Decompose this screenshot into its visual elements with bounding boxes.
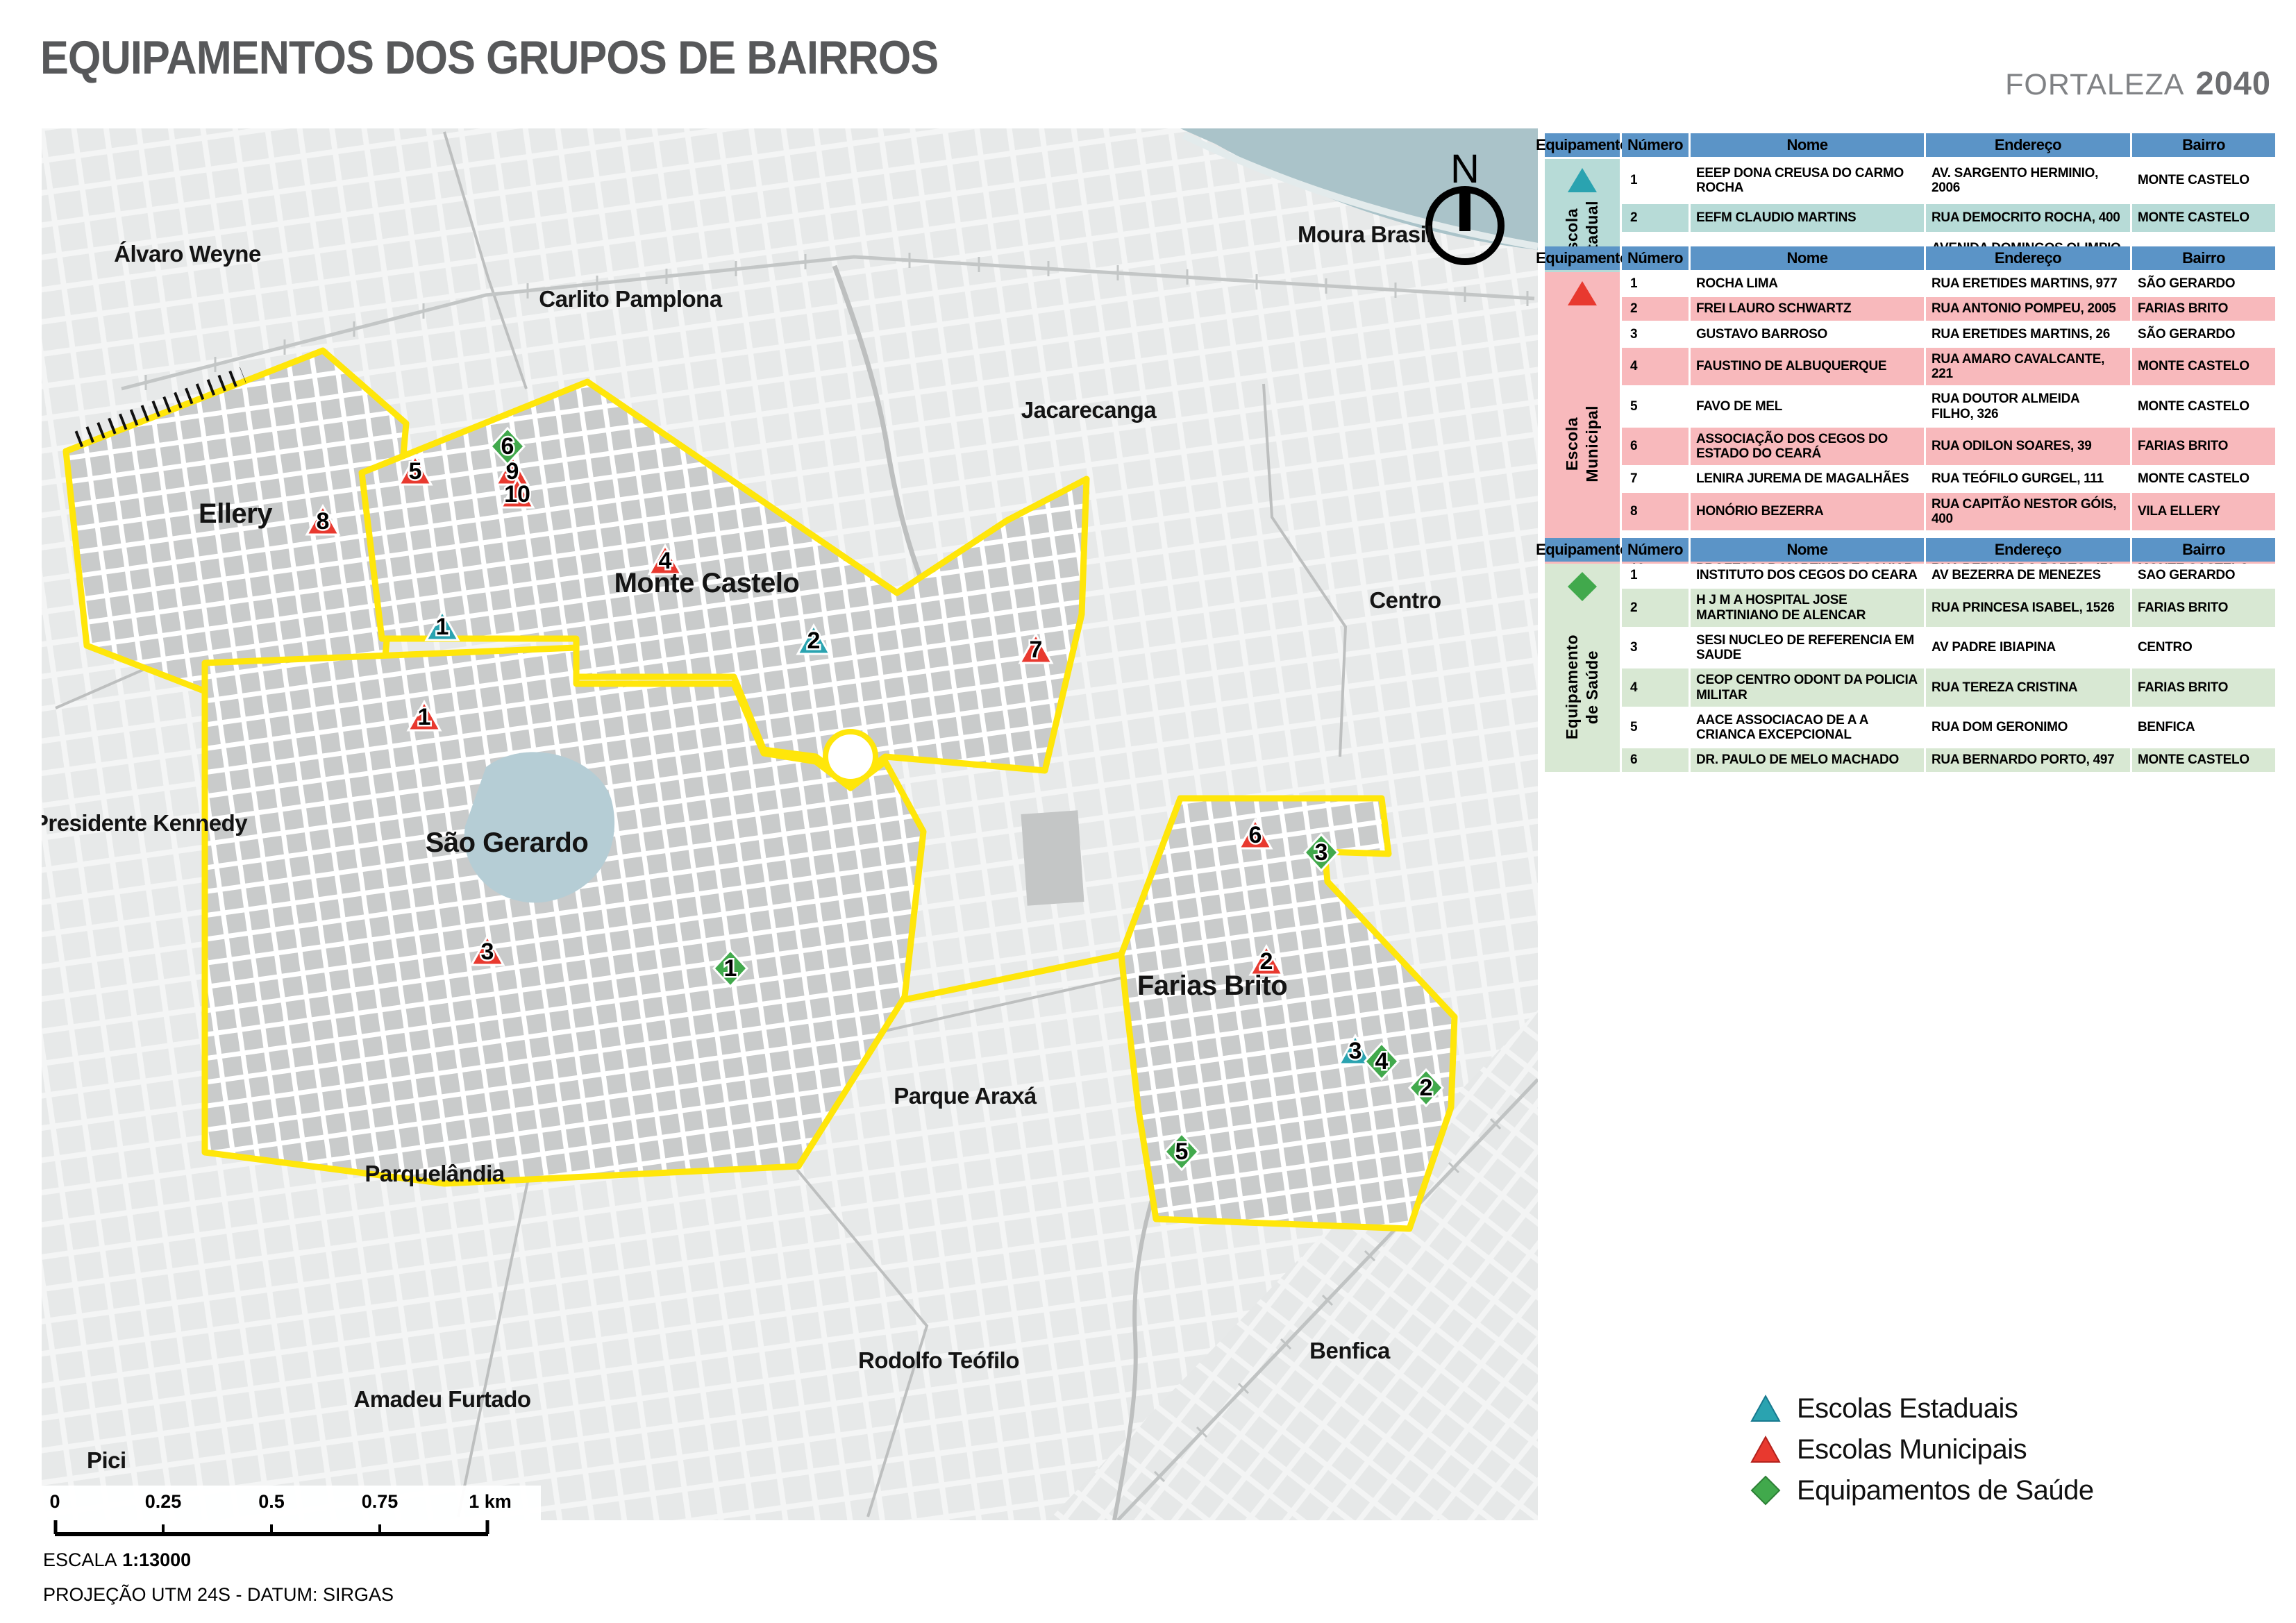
svg-text:10: 10 <box>504 481 530 507</box>
svg-text:7: 7 <box>1030 637 1043 663</box>
neighborhood-label-jacarecanga: Jacarecanga <box>1021 397 1157 423</box>
table-row: 2 <box>1622 297 1689 320</box>
svg-text:6: 6 <box>1249 822 1262 848</box>
table-row: 1 <box>1622 272 1689 295</box>
marker-municipal-10: 10 <box>501 479 533 507</box>
map-legend: Escolas Estaduais Escolas Municipais Equ… <box>1750 1393 2094 1506</box>
table-row: 1 <box>1622 159 1689 202</box>
svg-text:0.5: 0.5 <box>258 1491 285 1512</box>
col-header-nome: Nome <box>1691 133 1924 157</box>
group-label-municipal: Escola Municipal <box>1563 314 1602 574</box>
svg-text:3: 3 <box>1315 839 1328 866</box>
group-cell-municipal: Escola Municipal <box>1545 272 1620 581</box>
neighborhood-label-ellery: Ellery <box>199 498 273 529</box>
svg-text:4: 4 <box>1375 1048 1389 1075</box>
estadual-triangle-icon <box>1566 166 1598 194</box>
scale-text: ESCALA 1:13000 <box>43 1549 191 1571</box>
brand-city: FORTALEZA <box>2005 68 2184 102</box>
neighborhood-label-benfica: Benfica <box>1309 1338 1391 1363</box>
scalebar: 0 0.25 0.5 0.75 1 km <box>24 1486 541 1552</box>
table-row: 2 <box>1622 589 1689 627</box>
neighborhood-label-presidente-kennedy: Presidente Kennedy <box>42 810 248 836</box>
table-row: 7 <box>1622 467 1689 490</box>
table-row: 3 <box>1622 323 1689 346</box>
table-row: 4 <box>1622 668 1689 707</box>
table-row: 5 <box>1622 387 1689 426</box>
col-header-equipamento: Equipamento <box>1545 133 1620 157</box>
neighborhood-label-carlito-pamplona: Carlito Pamplona <box>539 286 723 312</box>
table-row: 8 <box>1622 493 1689 531</box>
map-canvas: N 1 2 3 1 2 3 4 5 6 7 8 9 10 1 2 3 4 5 6 <box>42 128 1538 1520</box>
table-escolas-municipais: Equipamento Número Nome Endereço Bairro … <box>1545 246 2275 581</box>
svg-text:8: 8 <box>317 508 330 535</box>
neighborhood-label-parque-araxa: Parque Araxá <box>894 1083 1037 1109</box>
neighborhood-label-monte-castelo: Monte Castelo <box>614 568 800 598</box>
table-row: 4 <box>1622 348 1689 386</box>
projection-text: PROJEÇÃO UTM 24S - DATUM: SIRGAS <box>43 1584 394 1606</box>
neighborhood-label-amadeu-furtado: Amadeu Furtado <box>353 1386 530 1412</box>
svg-text:1: 1 <box>436 614 449 640</box>
brand-year: 2040 <box>2195 64 2271 102</box>
table-row: 6 <box>1622 428 1689 466</box>
map-svg: N 1 2 3 1 2 3 4 5 6 7 8 9 10 1 2 3 4 5 6 <box>42 128 1538 1520</box>
municipal-triangle-icon <box>1566 279 1598 307</box>
legend-item-saude: Equipamentos de Saúde <box>1750 1474 2094 1506</box>
saude-diamond-icon <box>1566 571 1598 603</box>
neighborhood-label-pici: Pici <box>87 1447 126 1473</box>
brand-logo: FORTALEZA 2040 <box>2005 64 2271 102</box>
col-header-endereco: Endereço <box>1926 133 2130 157</box>
neighborhood-label-alvaro-weyne: Álvaro Weyne <box>114 241 261 267</box>
svg-text:2: 2 <box>807 628 821 654</box>
svg-text:3: 3 <box>481 939 494 965</box>
table-row: 6 <box>1622 748 1689 771</box>
estadual-triangle-icon <box>1750 1393 1782 1424</box>
table-row: 1 <box>1622 564 1689 587</box>
group-label-saude: Equipamento de Saúde <box>1563 609 1602 765</box>
svg-text:0.75: 0.75 <box>362 1491 399 1512</box>
svg-text:1: 1 <box>724 955 737 982</box>
saude-diamond-icon <box>1750 1474 1782 1506</box>
municipal-triangle-icon <box>1750 1433 1782 1465</box>
roundabout <box>826 732 875 782</box>
legend-item-municipais: Escolas Municipais <box>1750 1433 2094 1465</box>
neighborhood-label-sao-gerardo: São Gerardo <box>426 827 589 858</box>
neighborhood-label-parquelandia: Parquelândia <box>364 1161 505 1186</box>
neighborhood-label-rodolfo-teofilo: Rodolfo Teófilo <box>858 1347 1019 1373</box>
svg-text:2: 2 <box>1420 1075 1433 1101</box>
neighborhood-label-farias-brito: Farias Brito <box>1137 970 1287 1001</box>
col-header-bairro: Bairro <box>2132 133 2275 157</box>
table-row: 5 <box>1622 709 1689 747</box>
svg-text:0: 0 <box>49 1491 60 1512</box>
svg-text:3: 3 <box>1349 1038 1362 1064</box>
table-row: 3 <box>1622 629 1689 667</box>
page-title: EQUIPAMENTOS DOS GRUPOS DE BAIRROS <box>40 31 938 85</box>
north-label: N <box>1450 146 1480 192</box>
table-equipamentos-saude: Equipamento Número Nome Endereço Bairro … <box>1545 538 2275 772</box>
legend-item-estaduais: Escolas Estaduais <box>1750 1393 2094 1424</box>
page: { "title": "EQUIPAMENTOS DOS GRUPOS DE B… <box>0 0 2296 1623</box>
neighborhood-label-centro: Centro <box>1369 587 1441 613</box>
svg-text:0.25: 0.25 <box>145 1491 182 1512</box>
industrial-block <box>1021 810 1084 905</box>
col-header-numero: Número <box>1622 133 1689 157</box>
svg-text:5: 5 <box>1175 1138 1189 1165</box>
scalebar-line <box>55 1520 488 1534</box>
neighborhood-label-moura-brasil: Moura Brasil <box>1298 221 1432 247</box>
svg-text:6: 6 <box>501 433 514 460</box>
svg-text:1 km: 1 km <box>469 1491 512 1512</box>
group-cell-saude: Equipamento de Saúde <box>1545 564 1620 772</box>
svg-text:5: 5 <box>409 458 422 485</box>
scalebar-labels: 0 0.25 0.5 0.75 1 km <box>49 1491 511 1512</box>
svg-text:1: 1 <box>418 704 431 730</box>
table-row: 2 <box>1622 204 1689 232</box>
